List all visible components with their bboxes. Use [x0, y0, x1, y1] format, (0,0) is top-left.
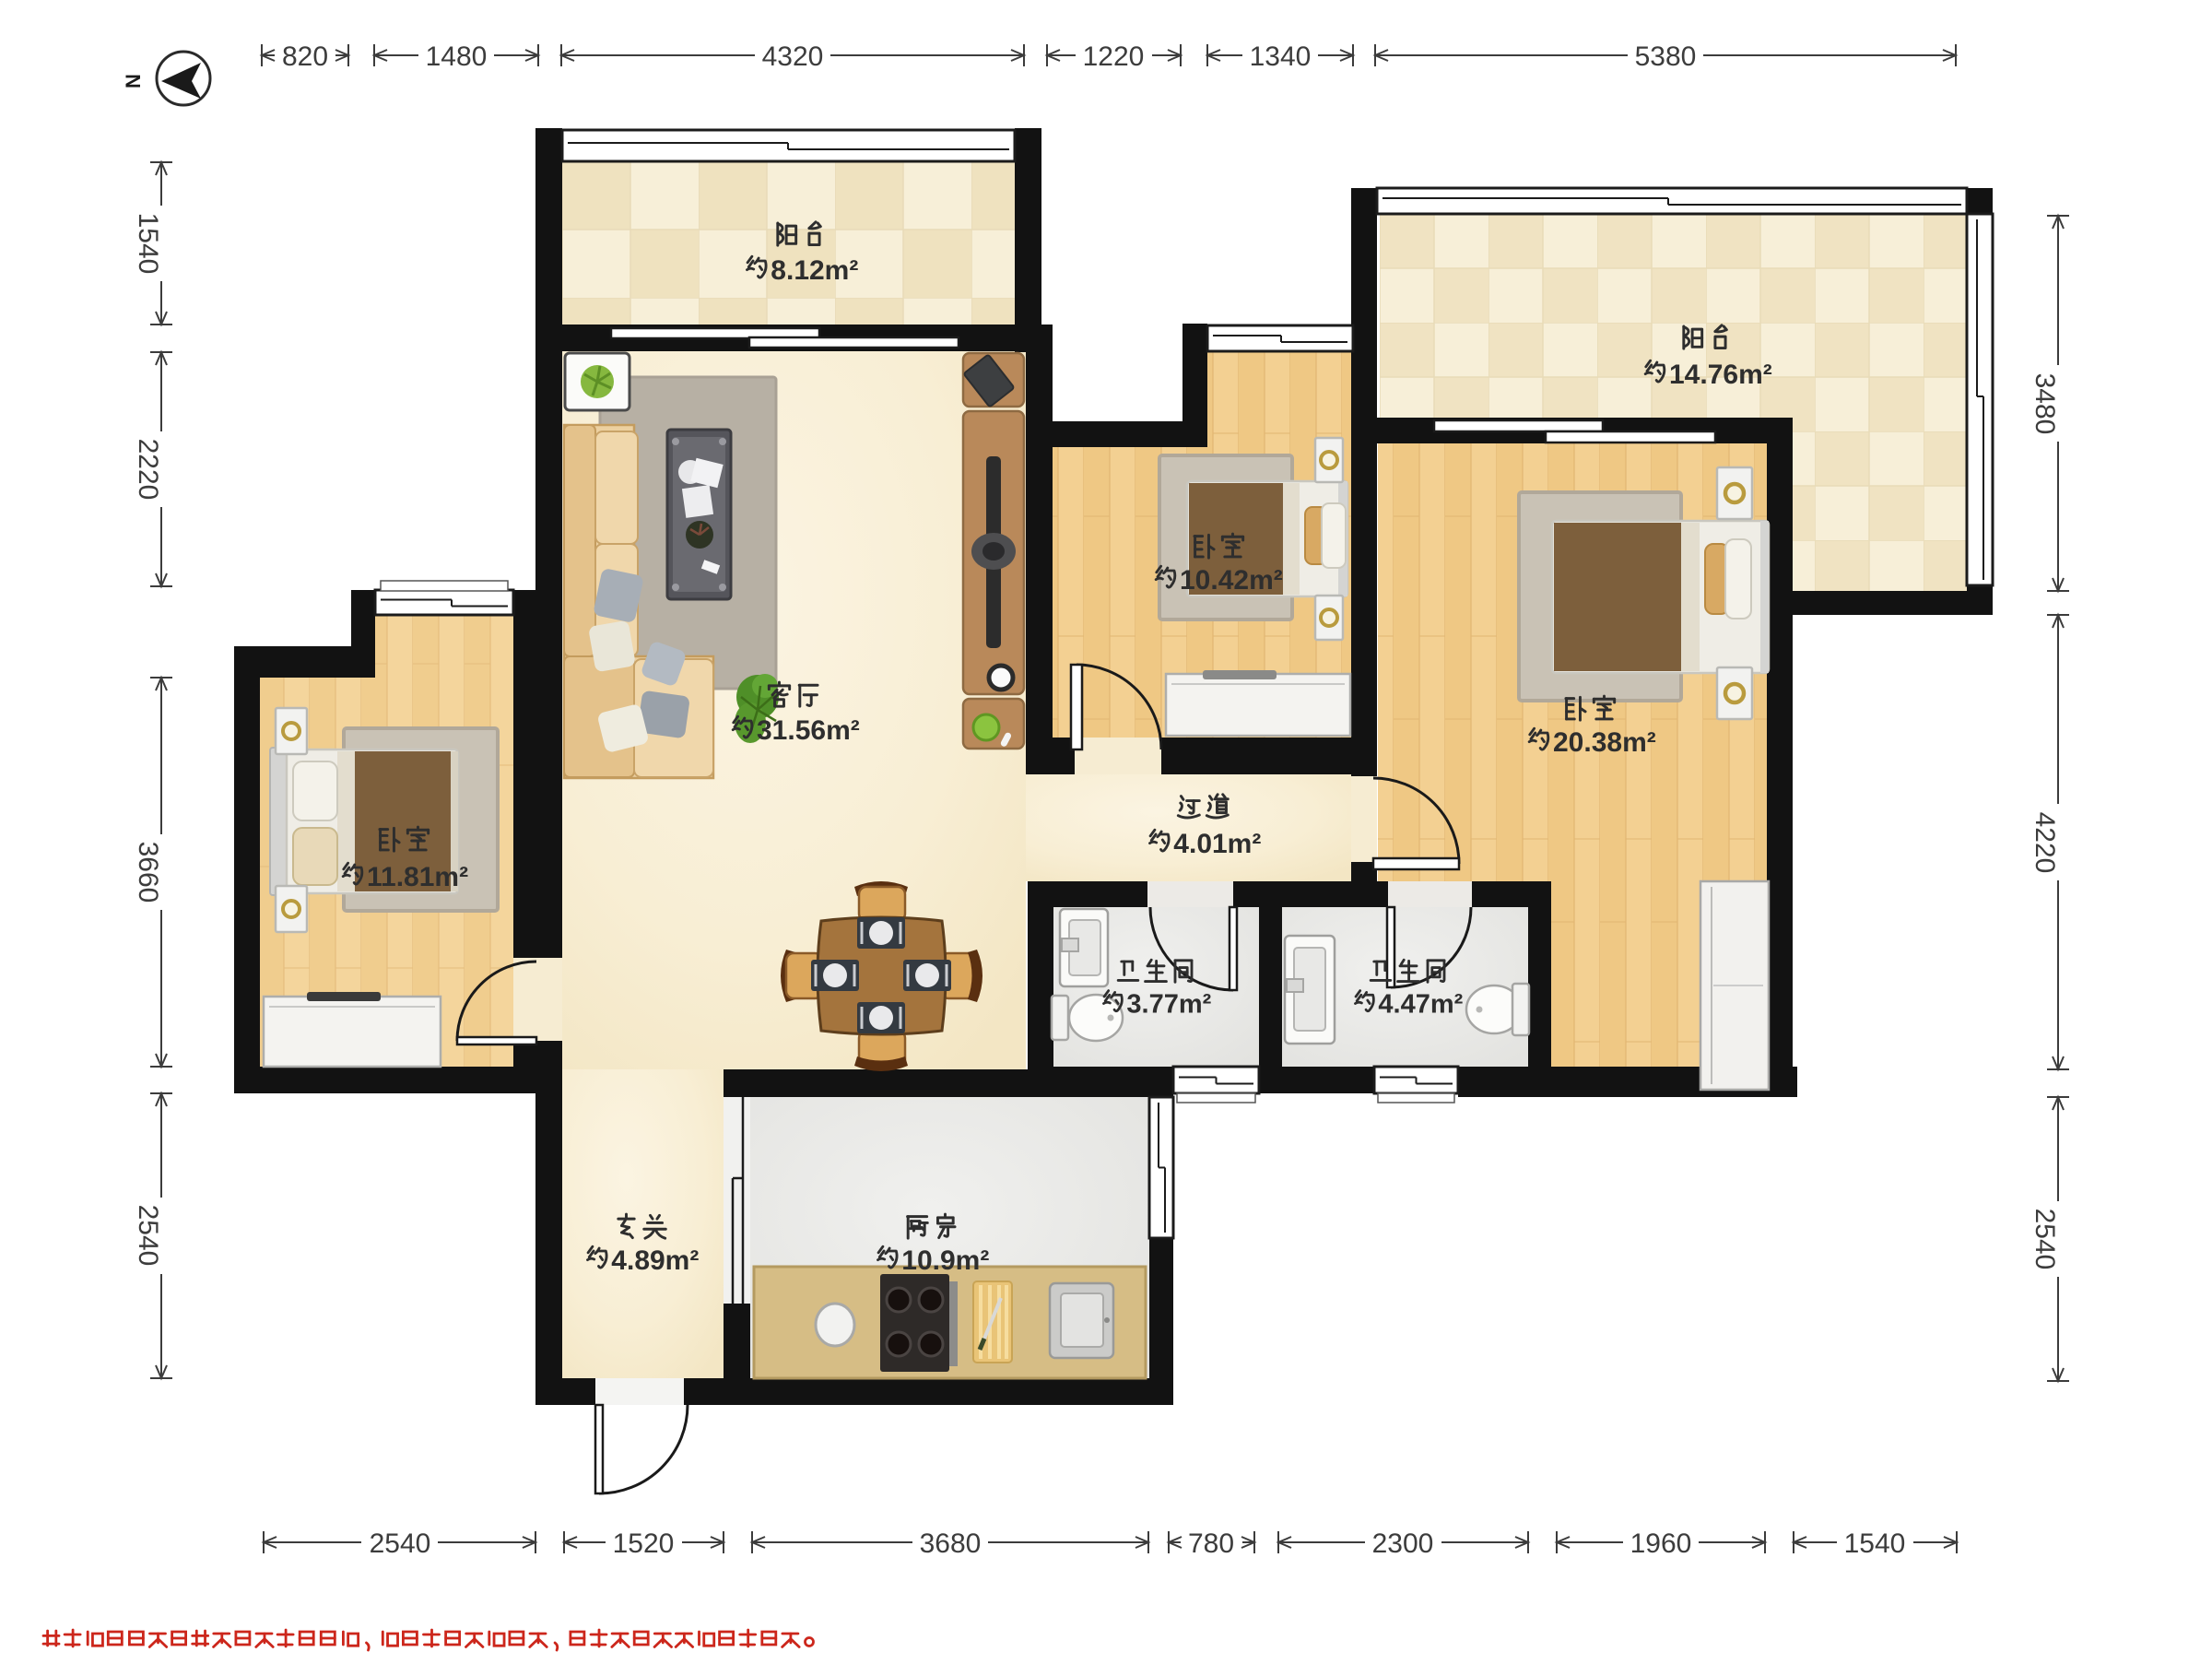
svg-text:1340: 1340 [1250, 41, 1312, 72]
svg-text:1540: 1540 [133, 213, 163, 275]
svg-text:2540: 2540 [133, 1205, 163, 1267]
svg-text:3.77m²: 3.77m² [1126, 989, 1211, 1019]
svg-text:4.01m²: 4.01m² [1173, 829, 1261, 859]
svg-text:4220: 4220 [2030, 812, 2060, 874]
svg-text:2300: 2300 [1372, 1528, 1434, 1559]
svg-text:10.42m²: 10.42m² [1180, 565, 1283, 596]
svg-text:11.81m²: 11.81m² [367, 862, 468, 892]
svg-text:4.47m²: 4.47m² [1378, 989, 1463, 1019]
svg-text:780: 780 [1188, 1528, 1234, 1559]
svg-text:2540: 2540 [370, 1528, 431, 1559]
svg-text:2220: 2220 [133, 439, 163, 501]
svg-text:20.38m²: 20.38m² [1553, 727, 1656, 758]
svg-text:14.76m²: 14.76m² [1669, 360, 1772, 390]
svg-text:5380: 5380 [1635, 41, 1697, 72]
svg-text:31.56m²: 31.56m² [757, 715, 860, 746]
svg-text:820: 820 [282, 41, 328, 72]
svg-text:1480: 1480 [426, 41, 488, 72]
svg-text:1220: 1220 [1083, 41, 1145, 72]
svg-text:3660: 3660 [133, 842, 163, 903]
svg-text:8.12m²: 8.12m² [771, 255, 858, 286]
svg-text:1520: 1520 [613, 1528, 675, 1559]
svg-text:N: N [122, 74, 145, 89]
svg-text:2540: 2540 [2030, 1209, 2060, 1270]
svg-text:4.89m²: 4.89m² [611, 1245, 699, 1276]
svg-text:4320: 4320 [762, 41, 824, 72]
svg-text:3680: 3680 [920, 1528, 982, 1559]
svg-text:1540: 1540 [1844, 1528, 1906, 1559]
svg-text:10.9m²: 10.9m² [901, 1245, 989, 1276]
svg-text:3480: 3480 [2030, 373, 2060, 435]
svg-text:1960: 1960 [1630, 1528, 1692, 1559]
